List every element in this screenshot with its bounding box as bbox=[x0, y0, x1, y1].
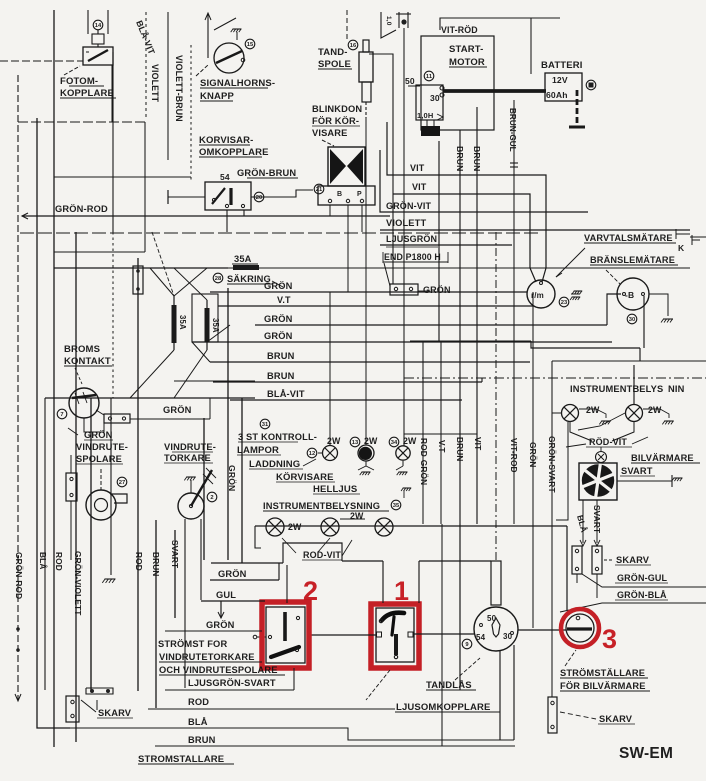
svg-text:9: 9 bbox=[465, 642, 469, 648]
svg-text:30: 30 bbox=[430, 93, 440, 103]
svg-text:END P1800 H: END P1800 H bbox=[384, 252, 441, 262]
svg-text:30: 30 bbox=[629, 317, 635, 323]
svg-text:3 ST KONTROLL-: 3 ST KONTROLL- bbox=[238, 432, 317, 442]
svg-text:GRÖN: GRÖN bbox=[264, 331, 293, 341]
svg-text:GRÖN-VIOLETT: GRÖN-VIOLETT bbox=[73, 551, 83, 615]
svg-text:BRUN: BRUN bbox=[455, 437, 465, 462]
svg-text:BRUN: BRUN bbox=[188, 735, 216, 745]
svg-text:VIT: VIT bbox=[473, 437, 483, 450]
svg-text:VINDRUTE-: VINDRUTE- bbox=[76, 442, 128, 452]
svg-text:GRÖN-ROD: GRÖN-ROD bbox=[55, 204, 108, 214]
svg-text:GRÖN: GRÖN bbox=[84, 430, 113, 440]
svg-text:20: 20 bbox=[256, 195, 262, 201]
svg-text:GRÖN: GRÖN bbox=[163, 405, 192, 415]
svg-text:34: 34 bbox=[391, 440, 398, 446]
svg-text:GRÖN-ROD: GRÖN-ROD bbox=[14, 552, 24, 599]
svg-text:KOPPLARE: KOPPLARE bbox=[60, 88, 114, 99]
svg-text:BATTERI: BATTERI bbox=[541, 60, 583, 71]
svg-text:ROD: ROD bbox=[54, 552, 64, 571]
svg-text:BLÅ: BLÅ bbox=[38, 552, 48, 570]
svg-text:50: 50 bbox=[405, 76, 415, 86]
svg-text:P: P bbox=[357, 191, 362, 198]
svg-text:GRÖN: GRÖN bbox=[218, 569, 247, 579]
svg-text:54: 54 bbox=[220, 172, 230, 182]
svg-text:ROD: ROD bbox=[188, 697, 209, 707]
svg-text:RÖD-VIT: RÖD-VIT bbox=[589, 437, 627, 447]
svg-text:GRÖN-GUL: GRÖN-GUL bbox=[617, 573, 668, 583]
svg-text:28: 28 bbox=[215, 276, 222, 282]
svg-text:KONTAKT: KONTAKT bbox=[64, 356, 111, 367]
svg-text:GRÖN: GRÖN bbox=[423, 285, 451, 295]
svg-text:GRÖN-BRUN: GRÖN-BRUN bbox=[237, 168, 296, 178]
svg-text:TORKARE: TORKARE bbox=[164, 453, 211, 463]
svg-text:HELLJUS: HELLJUS bbox=[313, 484, 357, 495]
svg-text:3: 3 bbox=[602, 624, 617, 654]
svg-text:FÖR BILVÄRMARE: FÖR BILVÄRMARE bbox=[560, 681, 646, 691]
svg-text:-B: -B bbox=[625, 290, 634, 300]
svg-text:LADDNING: LADDNING bbox=[249, 459, 300, 470]
svg-text:21: 21 bbox=[316, 187, 323, 193]
svg-text:TANDLÅS: TANDLÅS bbox=[426, 680, 472, 691]
svg-text:BLÅ: BLÅ bbox=[188, 717, 208, 727]
svg-text:BRUN: BRUN bbox=[267, 371, 295, 381]
svg-text:2: 2 bbox=[210, 495, 213, 501]
svg-text:KNAPP: KNAPP bbox=[200, 91, 235, 102]
svg-text:BRUN: BRUN bbox=[472, 146, 482, 171]
svg-text:INSTRUMENTBELYSNING: INSTRUMENTBELYSNING bbox=[263, 501, 380, 511]
svg-text:12: 12 bbox=[309, 451, 315, 457]
svg-text:2W: 2W bbox=[403, 436, 417, 446]
svg-text:GUL: GUL bbox=[216, 590, 236, 600]
svg-text:KORVISAR-: KORVISAR- bbox=[199, 135, 254, 146]
svg-text:FÖR KÖR-: FÖR KÖR- bbox=[312, 116, 359, 126]
svg-text:2W: 2W bbox=[648, 405, 662, 415]
svg-text:2W: 2W bbox=[288, 522, 302, 532]
svg-text:2W: 2W bbox=[350, 511, 364, 521]
svg-text:V.T: V.T bbox=[277, 295, 291, 305]
svg-text:VINDRUTETORKARE: VINDRUTETORKARE bbox=[159, 652, 255, 662]
svg-text:54: 54 bbox=[476, 633, 486, 642]
svg-text:LJUSOMKOPPLARE: LJUSOMKOPPLARE bbox=[396, 702, 490, 713]
svg-text:BRUN: BRUN bbox=[267, 351, 295, 361]
svg-text:2: 2 bbox=[303, 576, 318, 606]
svg-text:LJUSGRÖN-SVART: LJUSGRÖN-SVART bbox=[188, 678, 276, 688]
svg-text:FOTOM-: FOTOM- bbox=[60, 76, 98, 87]
svg-text:SKARV: SKARV bbox=[98, 708, 132, 718]
svg-text:K: K bbox=[678, 243, 685, 253]
svg-text:VIOLETT: VIOLETT bbox=[386, 218, 426, 228]
svg-text:GRÖN: GRÖN bbox=[264, 314, 293, 324]
svg-text:BRUN: BRUN bbox=[455, 146, 465, 171]
svg-text:BLINKDON: BLINKDON bbox=[312, 104, 362, 114]
svg-text:SKARV: SKARV bbox=[599, 714, 633, 724]
svg-text:BLÅ: BLÅ bbox=[575, 514, 589, 534]
svg-text:2W: 2W bbox=[327, 436, 341, 446]
svg-text:MOTOR: MOTOR bbox=[449, 57, 485, 68]
svg-text:B: B bbox=[337, 191, 342, 198]
svg-text:1,0H: 1,0H bbox=[417, 111, 433, 120]
svg-text:16: 16 bbox=[350, 43, 357, 49]
svg-text:BROMS: BROMS bbox=[64, 344, 100, 355]
svg-text:BRUN-GUL: BRUN-GUL bbox=[508, 108, 517, 152]
svg-text:SVART: SVART bbox=[621, 466, 653, 476]
svg-text:35: 35 bbox=[393, 503, 400, 509]
svg-text:STRÖMSTÄLLARE: STRÖMSTÄLLARE bbox=[560, 668, 645, 678]
svg-text:STROMSTALLARE: STROMSTALLARE bbox=[138, 754, 224, 765]
svg-text:VINDRUTE-: VINDRUTE- bbox=[164, 442, 216, 452]
svg-text:SKARV: SKARV bbox=[616, 555, 650, 565]
svg-text:BLÅ-VIT: BLÅ-VIT bbox=[267, 389, 305, 399]
svg-text:OCH VINDRUTESPOLARE: OCH VINDRUTESPOLARE bbox=[159, 665, 278, 675]
svg-text:BILVÄRMARE: BILVÄRMARE bbox=[631, 453, 694, 463]
svg-text:V.T: V.T bbox=[437, 440, 447, 453]
svg-text:SVART: SVART bbox=[592, 505, 602, 533]
svg-text:27: 27 bbox=[119, 480, 125, 486]
svg-text:VISARE: VISARE bbox=[312, 128, 348, 138]
svg-text:KÖRVISARE: KÖRVISARE bbox=[276, 472, 334, 483]
svg-text:23: 23 bbox=[561, 300, 568, 306]
svg-text:15: 15 bbox=[247, 42, 254, 48]
svg-text:SPOLARE: SPOLARE bbox=[76, 454, 122, 464]
svg-text:GRÖN: GRÖN bbox=[227, 465, 237, 491]
svg-text:11: 11 bbox=[426, 74, 433, 80]
svg-text:TAND-: TAND- bbox=[318, 47, 348, 58]
svg-text:30: 30 bbox=[503, 632, 513, 641]
svg-text:VARVTALSMÄTARE: VARVTALSMÄTARE bbox=[584, 233, 673, 243]
svg-text:VIOLETT-BRUN: VIOLETT-BRUN bbox=[174, 55, 184, 122]
svg-text:GRÖN-VIT: GRÖN-VIT bbox=[386, 201, 432, 211]
svg-text:35A: 35A bbox=[234, 254, 252, 264]
svg-text:BRUN: BRUN bbox=[151, 552, 161, 577]
svg-text:SIGNALHORNS-: SIGNALHORNS- bbox=[200, 78, 275, 89]
svg-text:NIN: NIN bbox=[668, 384, 685, 394]
svg-text:ROD-VIT: ROD-VIT bbox=[303, 550, 341, 560]
svg-text:VIOLETT: VIOLETT bbox=[150, 64, 160, 103]
svg-text:1: 1 bbox=[394, 576, 409, 606]
svg-text:ROD-GRÖN: ROD-GRÖN bbox=[419, 438, 429, 485]
svg-text:35A: 35A bbox=[178, 315, 187, 330]
svg-text:SVART: SVART bbox=[170, 540, 180, 568]
svg-text:VIT-RÖD: VIT-RÖD bbox=[441, 25, 478, 35]
svg-text:31: 31 bbox=[262, 422, 269, 428]
svg-text:LJUSGRÖN: LJUSGRÖN bbox=[386, 234, 437, 244]
svg-text:VIT-ROD: VIT-ROD bbox=[509, 438, 519, 473]
svg-text:GRÖN: GRÖN bbox=[264, 281, 293, 291]
svg-text:14: 14 bbox=[95, 23, 102, 29]
svg-text:LAMPOR: LAMPOR bbox=[237, 445, 279, 456]
svg-text:START-: START- bbox=[449, 44, 484, 55]
svg-text:STRÖMST FOR: STRÖMST FOR bbox=[158, 639, 227, 649]
svg-text:BRÄNSLEMÄTARE: BRÄNSLEMÄTARE bbox=[590, 255, 675, 265]
svg-text:SPOLE: SPOLE bbox=[318, 59, 351, 70]
svg-text:OMKOPPLARE: OMKOPPLARE bbox=[199, 147, 269, 158]
svg-text:VIT: VIT bbox=[410, 163, 425, 173]
svg-text:7: 7 bbox=[60, 412, 63, 418]
svg-text:13: 13 bbox=[352, 440, 359, 446]
svg-text:GRÖN-BLÅ: GRÖN-BLÅ bbox=[617, 590, 667, 600]
svg-text:VIT: VIT bbox=[412, 182, 427, 192]
svg-text:GRÖN: GRÖN bbox=[206, 620, 235, 630]
svg-text:35A: 35A bbox=[211, 318, 220, 333]
svg-text:60Ah: 60Ah bbox=[546, 90, 568, 100]
svg-text:12V: 12V bbox=[552, 75, 568, 85]
svg-text:1,0: 1,0 bbox=[385, 16, 392, 26]
svg-text:ROD: ROD bbox=[134, 552, 144, 571]
svg-text:INSTRUMENTBELYS: INSTRUMENTBELYS bbox=[570, 384, 663, 394]
svg-text:SW-EM: SW-EM bbox=[619, 745, 673, 762]
